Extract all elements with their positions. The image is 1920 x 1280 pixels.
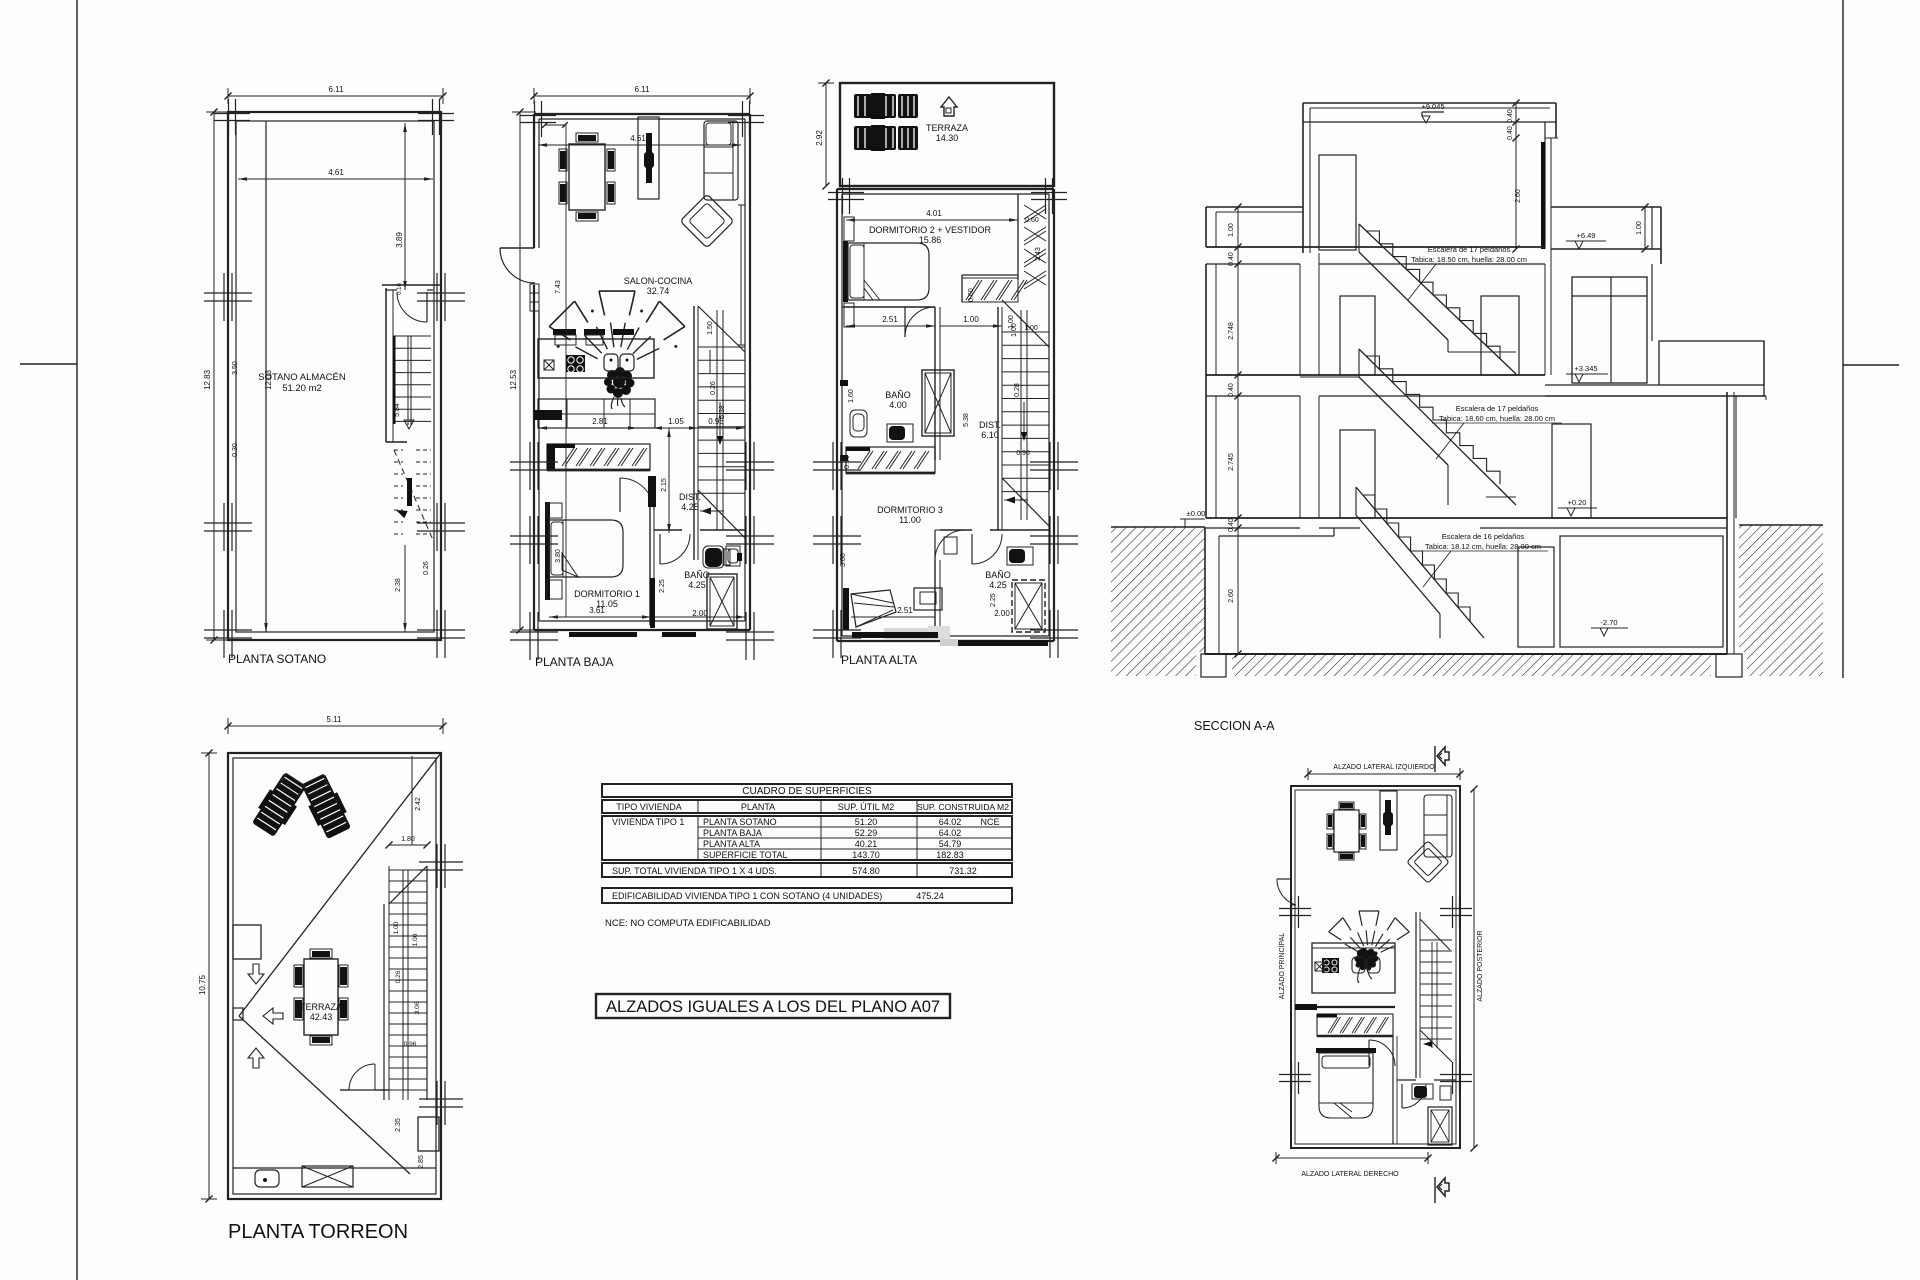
svg-text:1.05: 1.05	[668, 417, 684, 426]
svg-text:BAÑO: BAÑO	[885, 390, 911, 400]
svg-text:5.84: 5.84	[394, 403, 401, 417]
svg-text:4.00: 4.00	[889, 400, 907, 410]
svg-text:6.11: 6.11	[329, 85, 345, 94]
svg-text:3.06: 3.06	[414, 1001, 421, 1014]
svg-text:SUP. ÚTIL M2: SUP. ÚTIL M2	[838, 802, 895, 812]
svg-text:12.83: 12.83	[203, 369, 212, 390]
svg-text:64.02: 64.02	[939, 817, 962, 827]
svg-text:TIPO VIVIENDA: TIPO VIVIENDA	[616, 802, 682, 812]
svg-text:42.43: 42.43	[310, 1012, 333, 1022]
svg-text:0.16: 0.16	[397, 283, 403, 295]
svg-text:PLANTA SOTANO: PLANTA SOTANO	[228, 652, 326, 666]
svg-text:4.25: 4.25	[688, 580, 706, 590]
svg-text:1.00: 1.00	[393, 921, 400, 934]
svg-text:2.35: 2.35	[395, 1118, 402, 1132]
svg-text:NCE: NO COMPUTA EDIFICABILIDA: NCE: NO COMPUTA EDIFICABILIDAD	[605, 918, 771, 929]
svg-text:0.40: 0.40	[1507, 109, 1514, 123]
svg-text:0.28: 0.28	[1014, 383, 1021, 397]
svg-text:PLANTA: PLANTA	[741, 802, 775, 812]
svg-text:2.51: 2.51	[882, 315, 898, 324]
svg-text:SALON-COCINA: SALON-COCINA	[624, 276, 693, 286]
svg-text:4.25: 4.25	[681, 502, 699, 512]
svg-text:+3.345: +3.345	[1574, 364, 1597, 373]
svg-text:2.43: 2.43	[1035, 247, 1042, 261]
svg-text:VIVIENDA TIPO 1: VIVIENDA TIPO 1	[612, 817, 684, 827]
svg-text:2.85: 2.85	[418, 1155, 425, 1169]
svg-text:5.11: 5.11	[327, 715, 343, 724]
svg-text:2.25: 2.25	[990, 593, 997, 607]
svg-text:2.748: 2.748	[1228, 322, 1235, 340]
svg-text:ALZADO LATERAL IZQUIERDO: ALZADO LATERAL IZQUIERDO	[1333, 764, 1435, 771]
svg-text:ALZADO PRINCIPAL: ALZADO PRINCIPAL	[1279, 933, 1286, 999]
svg-text:0.40: 0.40	[1228, 518, 1235, 532]
svg-text:0.30: 0.30	[232, 443, 239, 457]
svg-text:1.00: 1.00	[1011, 323, 1018, 337]
svg-text:+9.045: +9.045	[1421, 102, 1444, 111]
svg-text:4.01: 4.01	[926, 209, 942, 218]
svg-text:SUP. CONSTRUIDA M2: SUP. CONSTRUIDA M2	[917, 802, 1009, 812]
svg-text:1.00: 1.00	[1636, 221, 1643, 235]
svg-text:±0.00: ±0.00	[1187, 509, 1206, 518]
svg-text:3.89: 3.89	[395, 232, 404, 248]
svg-text:54.79: 54.79	[939, 839, 962, 849]
svg-text:2.42: 2.42	[415, 797, 422, 811]
svg-text:+6.49: +6.49	[1577, 231, 1596, 240]
svg-text:3.61: 3.61	[589, 606, 605, 615]
svg-text:0.90: 0.90	[1016, 450, 1030, 457]
svg-text:+0.20: +0.20	[1568, 498, 1587, 507]
svg-text:PLANTA TORREON: PLANTA TORREON	[228, 1221, 408, 1243]
svg-text:3.50: 3.50	[232, 361, 239, 375]
svg-text:ALZADO POSTERIOR: ALZADO POSTERIOR	[1477, 930, 1484, 1001]
svg-text:51.20 m2: 51.20 m2	[282, 383, 322, 394]
svg-text:0.96: 0.96	[404, 1041, 417, 1048]
svg-text:14.30: 14.30	[936, 133, 959, 143]
svg-text:2.92: 2.92	[815, 130, 824, 146]
svg-text:-2.70: -2.70	[1600, 618, 1617, 627]
svg-text:1.00: 1.00	[1228, 223, 1235, 237]
svg-text:2.00: 2.00	[994, 609, 1010, 618]
svg-text:PLANTA ALTA: PLANTA ALTA	[841, 653, 917, 667]
svg-text:1.80: 1.80	[401, 836, 415, 843]
svg-text:Tabica: 18.50 cm, huella: 28.0: Tabica: 18.50 cm, huella: 28.00 cm	[1411, 255, 1527, 264]
svg-text:2.60: 2.60	[1515, 189, 1522, 203]
svg-text:BAÑO: BAÑO	[985, 570, 1011, 580]
svg-text:SOTANO ALMACÉN: SOTANO ALMACÉN	[258, 372, 346, 383]
svg-text:Escalera de 17 peldaños: Escalera de 17 peldaños	[1456, 404, 1539, 413]
svg-text:Tabica: 18.12 cm, huella: 28.0: Tabica: 18.12 cm, huella: 28.00 cm	[1425, 542, 1541, 551]
svg-text:1.00: 1.00	[963, 315, 979, 324]
svg-text:1.60: 1.60	[848, 389, 855, 403]
svg-text:EDIFICABILIDAD VIVIENDA TIPO 1: EDIFICABILIDAD VIVIENDA TIPO 1 CON SOTAN…	[612, 891, 882, 901]
svg-text:6.11: 6.11	[635, 85, 651, 94]
svg-text:2.15: 2.15	[661, 478, 668, 492]
svg-text:NCE: NCE	[980, 817, 999, 827]
svg-text:0.40: 0.40	[1507, 126, 1514, 140]
svg-text:TERRAZA: TERRAZA	[300, 1002, 342, 1012]
svg-text:ALZADOS IGUALES A LOS DEL PLAN: ALZADOS IGUALES A LOS DEL PLANO A07	[606, 998, 940, 1016]
svg-text:2.25: 2.25	[659, 579, 666, 593]
svg-text:ALZADO LATERAL DERECHO: ALZADO LATERAL DERECHO	[1301, 1171, 1399, 1178]
svg-text:PLANTA BAJA: PLANTA BAJA	[535, 655, 613, 669]
svg-text:182.83: 182.83	[936, 850, 964, 860]
svg-text:475.24: 475.24	[916, 891, 944, 901]
svg-text:5.38: 5.38	[963, 413, 970, 427]
svg-text:4.61: 4.61	[328, 168, 344, 177]
svg-text:BAÑO: BAÑO	[684, 570, 710, 580]
svg-text:2.38: 2.38	[395, 578, 402, 592]
svg-text:574.80: 574.80	[852, 866, 880, 876]
svg-text:2.745: 2.745	[1228, 453, 1235, 471]
svg-text:1.00: 1.00	[412, 933, 419, 946]
svg-text:Escalera de 17 peldaños: Escalera de 17 peldaños	[1428, 245, 1511, 254]
svg-text:TERRAZA: TERRAZA	[926, 123, 968, 133]
svg-text:143.70: 143.70	[852, 850, 880, 860]
svg-text:32.74: 32.74	[647, 286, 670, 296]
svg-text:PLANTA SOTANO: PLANTA SOTANO	[703, 817, 777, 827]
svg-text:DORMITORIO 3: DORMITORIO 3	[877, 505, 943, 515]
svg-text:12.53: 12.53	[509, 369, 518, 390]
svg-text:2.51: 2.51	[897, 606, 913, 615]
svg-text:1.50: 1.50	[707, 321, 714, 335]
svg-text:0.60: 0.60	[968, 288, 975, 302]
svg-text:52.29: 52.29	[855, 828, 878, 838]
svg-text:51.20: 51.20	[855, 817, 878, 827]
svg-text:0.26: 0.26	[710, 381, 717, 395]
svg-text:7.43: 7.43	[555, 280, 562, 294]
svg-text:Escalera de 16 peldaños: Escalera de 16 peldaños	[1442, 532, 1525, 541]
svg-text:SUPERFICIE TOTAL: SUPERFICIE TOTAL	[703, 850, 788, 860]
svg-text:SUP. TOTAL VIVIENDA TIPO 1 X 4: SUP. TOTAL VIVIENDA TIPO 1 X 4 UDS.	[612, 866, 777, 876]
svg-text:PLANTA BAJA: PLANTA BAJA	[703, 828, 762, 838]
svg-text:4.25: 4.25	[989, 580, 1007, 590]
svg-text:CUADRO DE SUPERFICIES: CUADRO DE SUPERFICIES	[742, 786, 872, 797]
svg-text:Tabica: 18.60 cm, huella: 28.0: Tabica: 18.60 cm, huella: 28.00 cm	[1439, 414, 1555, 423]
svg-text:0.60: 0.60	[1025, 217, 1039, 224]
svg-text:3.80: 3.80	[555, 549, 562, 563]
svg-text:6.10: 6.10	[981, 430, 999, 440]
svg-text:PLANTA ALTA: PLANTA ALTA	[703, 839, 760, 849]
svg-text:2.60: 2.60	[1228, 589, 1235, 603]
svg-text:0.26: 0.26	[423, 561, 430, 575]
svg-text:731.32: 731.32	[949, 866, 977, 876]
svg-text:2.81: 2.81	[592, 417, 608, 426]
svg-text:11.00: 11.00	[899, 515, 921, 525]
svg-text:40.21: 40.21	[855, 839, 878, 849]
svg-text:SECCION A-A: SECCION A-A	[1194, 719, 1275, 733]
svg-text:0.40: 0.40	[1228, 383, 1235, 397]
svg-text:DORMITORIO 2 + VESTIDOR: DORMITORIO 2 + VESTIDOR	[869, 225, 992, 235]
svg-text:0.26: 0.26	[395, 970, 402, 983]
svg-text:10.75: 10.75	[198, 974, 207, 995]
svg-text:DORMITORIO 1: DORMITORIO 1	[574, 589, 640, 599]
svg-text:64.02: 64.02	[939, 828, 962, 838]
